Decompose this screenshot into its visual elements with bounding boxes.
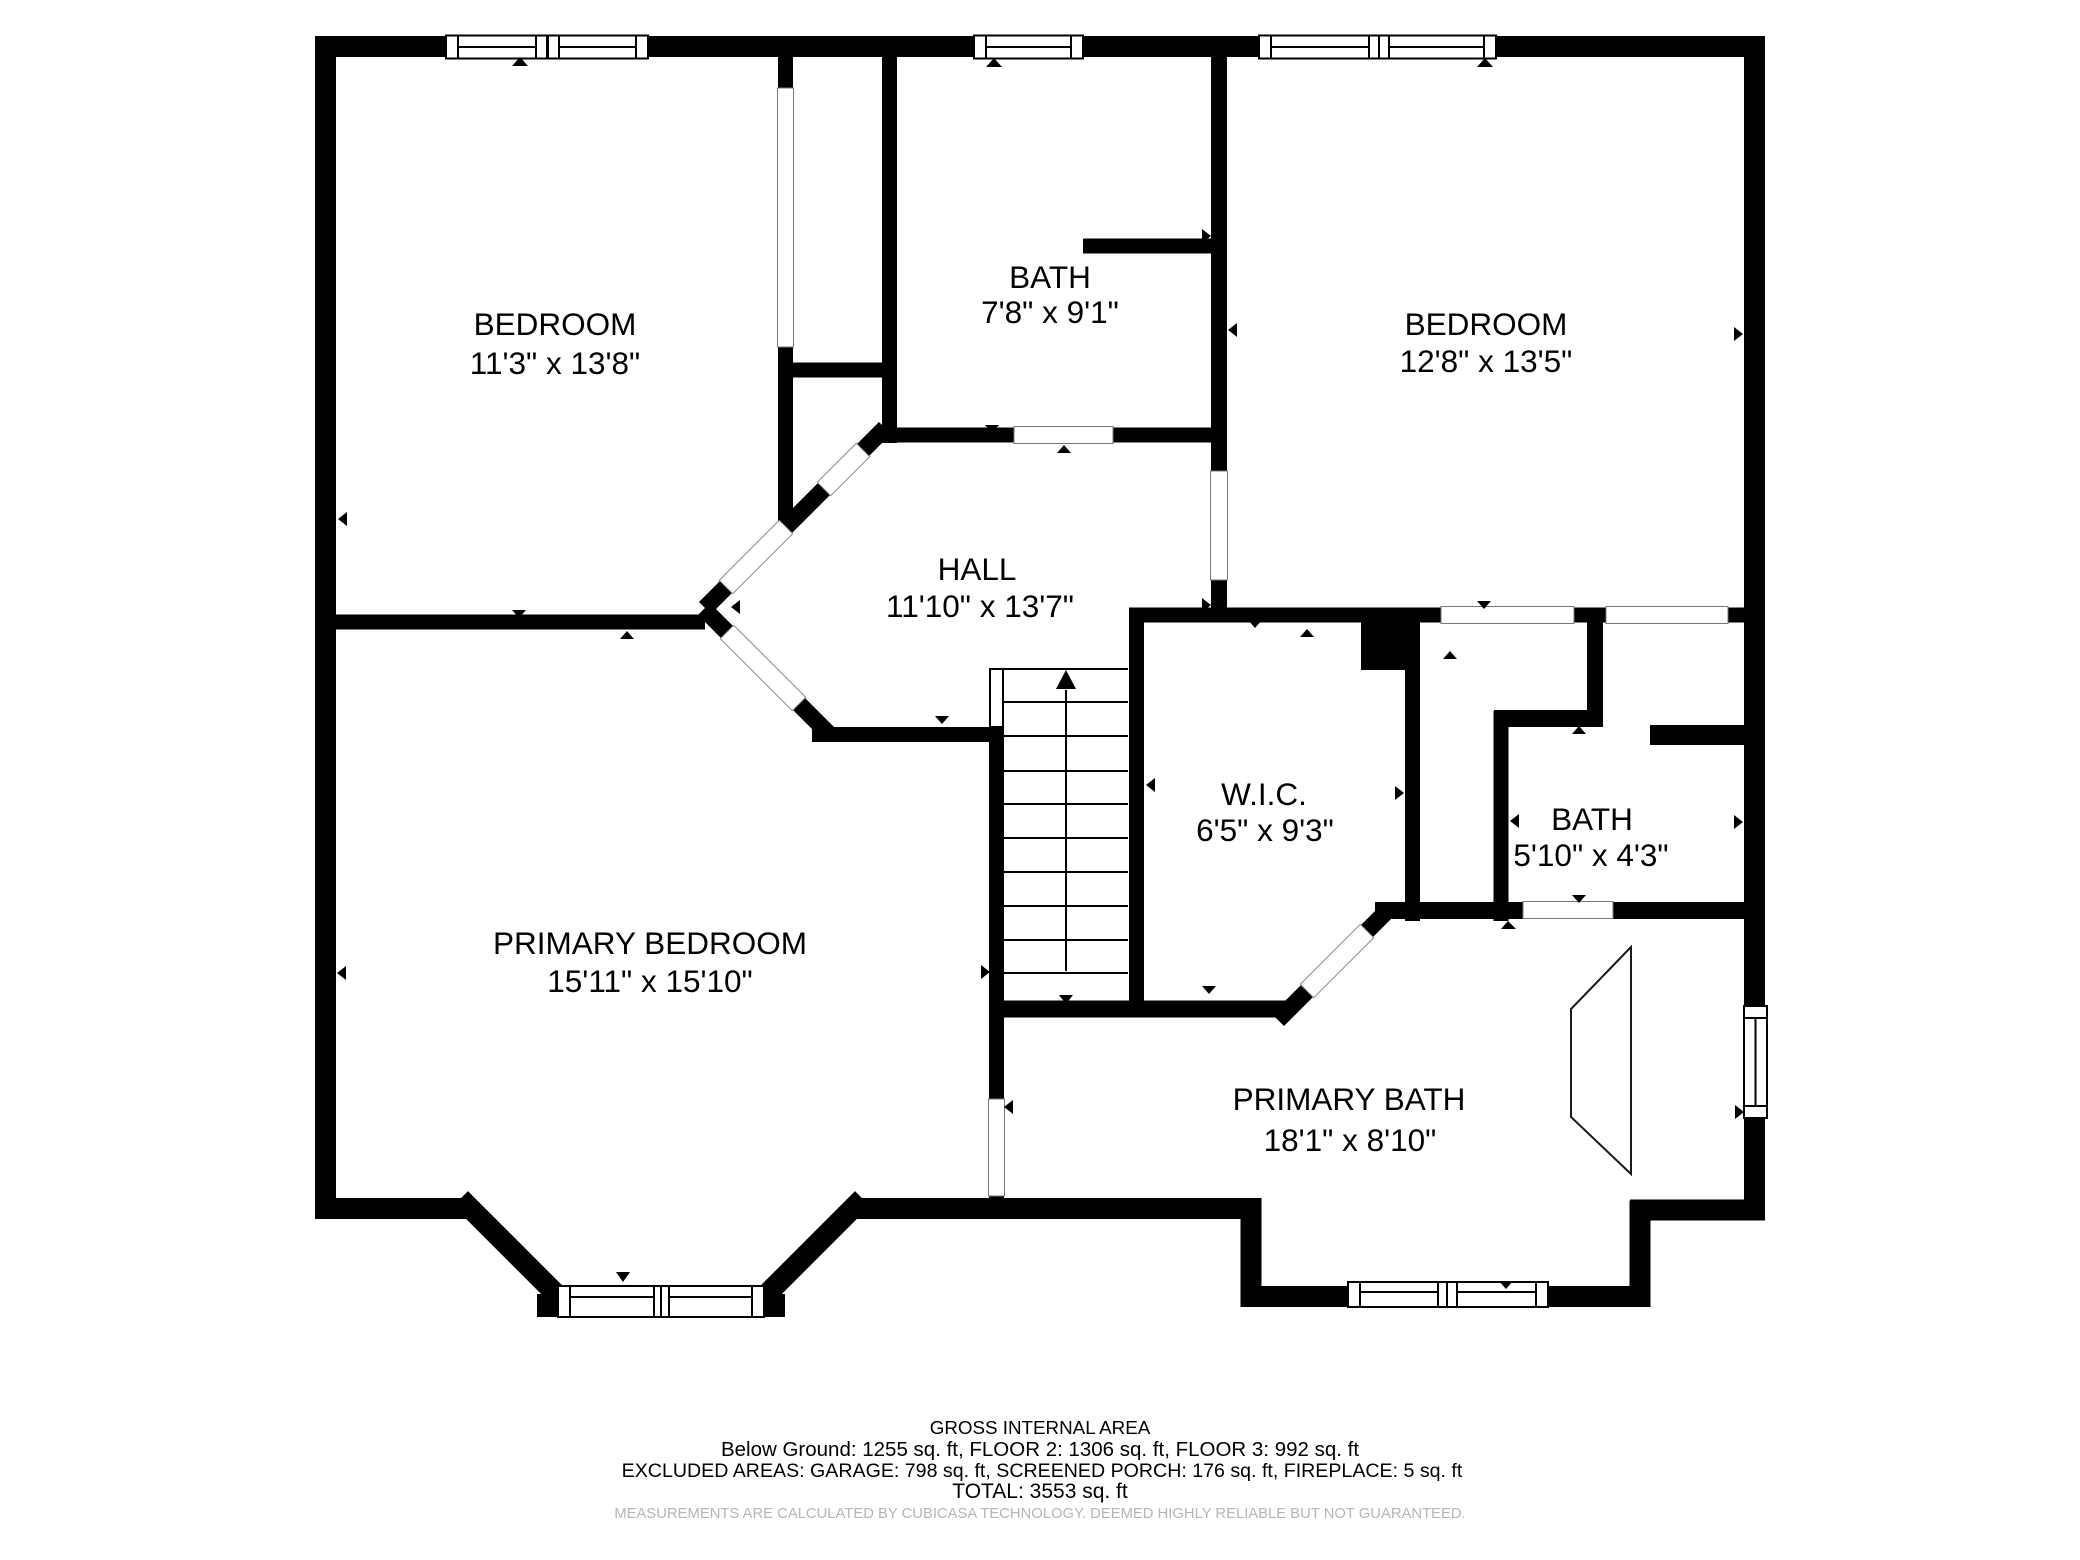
svg-text:12'8" x 13'5": 12'8" x 13'5": [1400, 343, 1573, 379]
svg-text:11'10" x 13'7": 11'10" x 13'7": [886, 588, 1074, 624]
svg-text:BATH: BATH: [1551, 801, 1633, 837]
svg-text:TOTAL: 3553 sq. ft: TOTAL: 3553 sq. ft: [952, 1480, 1128, 1503]
svg-text:EXCLUDED AREAS: GARAGE: 798 sq: EXCLUDED AREAS: GARAGE: 798 sq. ft, SCRE…: [622, 1460, 1463, 1482]
svg-text:GROSS INTERNAL AREA: GROSS INTERNAL AREA: [930, 1417, 1151, 1438]
svg-text:BATH: BATH: [1009, 259, 1091, 295]
svg-text:W.I.C.: W.I.C.: [1221, 776, 1307, 812]
svg-text:5'10" x 4'3": 5'10" x 4'3": [1513, 837, 1668, 873]
svg-text:Below Ground: 1255 sq. ft, FLO: Below Ground: 1255 sq. ft, FLOOR 2: 1306…: [721, 1438, 1359, 1461]
svg-text:BEDROOM: BEDROOM: [1405, 306, 1568, 342]
svg-text:HALL: HALL: [938, 551, 1017, 587]
svg-text:15'11" x 15'10": 15'11" x 15'10": [547, 963, 752, 999]
svg-text:PRIMARY BEDROOM: PRIMARY BEDROOM: [493, 925, 807, 961]
svg-text:MEASUREMENTS ARE CALCULATED BY: MEASUREMENTS ARE CALCULATED BY CUBICASA …: [614, 1506, 1465, 1522]
svg-text:18'1" x 8'10": 18'1" x 8'10": [1264, 1122, 1437, 1158]
svg-text:7'8" x 9'1": 7'8" x 9'1": [981, 294, 1119, 330]
svg-text:PRIMARY BATH: PRIMARY BATH: [1233, 1081, 1466, 1117]
svg-text:6'5" x 9'3": 6'5" x 9'3": [1196, 812, 1334, 848]
svg-text:11'3" x 13'8": 11'3" x 13'8": [470, 345, 640, 381]
svg-text:BEDROOM: BEDROOM: [474, 306, 637, 342]
